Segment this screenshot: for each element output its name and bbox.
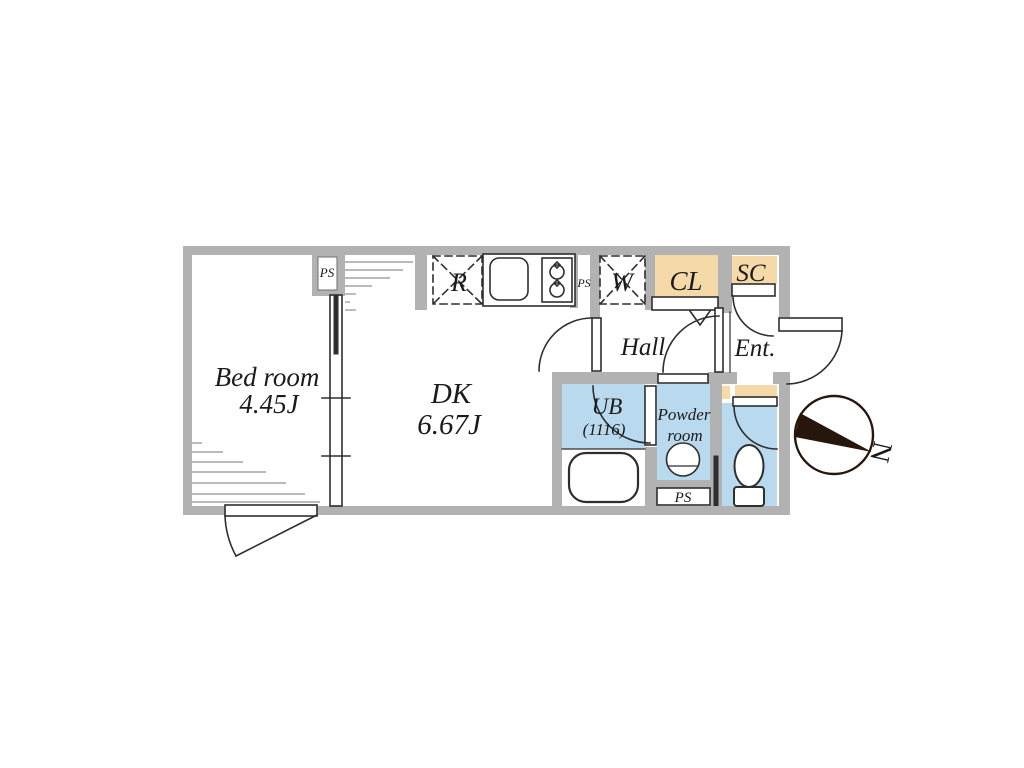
powder-room-label-line1: Powder <box>657 405 711 424</box>
entrance-label: Ent. <box>734 335 776 362</box>
kitchen-counter <box>483 254 575 306</box>
wall-right-upper <box>779 246 790 317</box>
wall-left <box>183 246 192 515</box>
shoe-closet-label: SC <box>736 260 766 287</box>
floor-plan-page: Bed room 4.45J DK 6.67J Hall Ent. CL SC … <box>0 0 1024 768</box>
bedroom-size-label: 4.45J <box>239 389 300 419</box>
ps-kitchen-label: PS <box>576 276 590 290</box>
toilet-bowl <box>735 445 764 487</box>
unit-bath-left-wall <box>552 372 562 515</box>
north-label: N <box>863 439 898 466</box>
powder-bottom-wall <box>645 480 710 488</box>
shoe-closet-door-arc <box>733 296 773 336</box>
unit-bath-size-label: (1116) <box>583 420 626 439</box>
bedroom-window-swing-line <box>236 515 317 556</box>
ps-top-label: PS <box>319 265 335 280</box>
ps-bottom-label: PS <box>674 490 692 506</box>
closet-shoecloset-wall <box>718 246 732 313</box>
bath-powder-wall <box>645 447 657 506</box>
washer-label: W <box>611 268 635 297</box>
kitchen-stub-wall <box>415 255 427 310</box>
dk-hatch-lines <box>345 262 413 310</box>
toilet-door-leaf <box>733 397 777 406</box>
ent-bottom-wall-right <box>773 372 790 384</box>
hall-bottom-wall-mid <box>708 372 737 384</box>
toilet-tank <box>734 487 764 506</box>
hall-bottom-wall-left <box>552 372 658 384</box>
north-compass: N <box>795 396 898 474</box>
bedroom-window-swing-arc <box>225 516 236 556</box>
bedroom-label: Bed room <box>215 362 320 392</box>
bedroom-hatch-lines <box>192 443 320 502</box>
hall-label: Hall <box>620 334 666 361</box>
dk-label: DK <box>430 378 473 410</box>
unit-bath-door-leaf <box>645 386 656 445</box>
powder-basin <box>667 443 700 476</box>
dk-hall-door-arc <box>539 318 592 371</box>
closet-label: CL <box>669 266 702 296</box>
north-arrow <box>795 413 872 452</box>
dk-hall-door-leaf <box>592 318 601 371</box>
entrance-door-leaf <box>779 318 842 331</box>
wall-right-lower <box>779 373 790 515</box>
entrance-door-arc <box>787 331 842 384</box>
powder-threshold <box>658 374 708 383</box>
hall-ent-door-arc <box>663 316 719 372</box>
closet-front <box>652 297 718 310</box>
powder-room-label-line2: room <box>667 426 702 445</box>
dk-size-label: 6.67J <box>417 409 482 441</box>
bedroom-window-leaf <box>225 505 317 516</box>
bathtub <box>569 453 638 502</box>
refrigerator-label: R <box>450 268 467 297</box>
shelf-strip-b <box>735 385 777 397</box>
kitchen-ps-wall-right <box>590 255 600 318</box>
hall-ent-door-leaf <box>715 308 723 372</box>
floor-plan-drawing: Bed room 4.45J DK 6.67J Hall Ent. CL SC … <box>0 0 1024 768</box>
unit-bath-label: UB <box>592 394 623 419</box>
